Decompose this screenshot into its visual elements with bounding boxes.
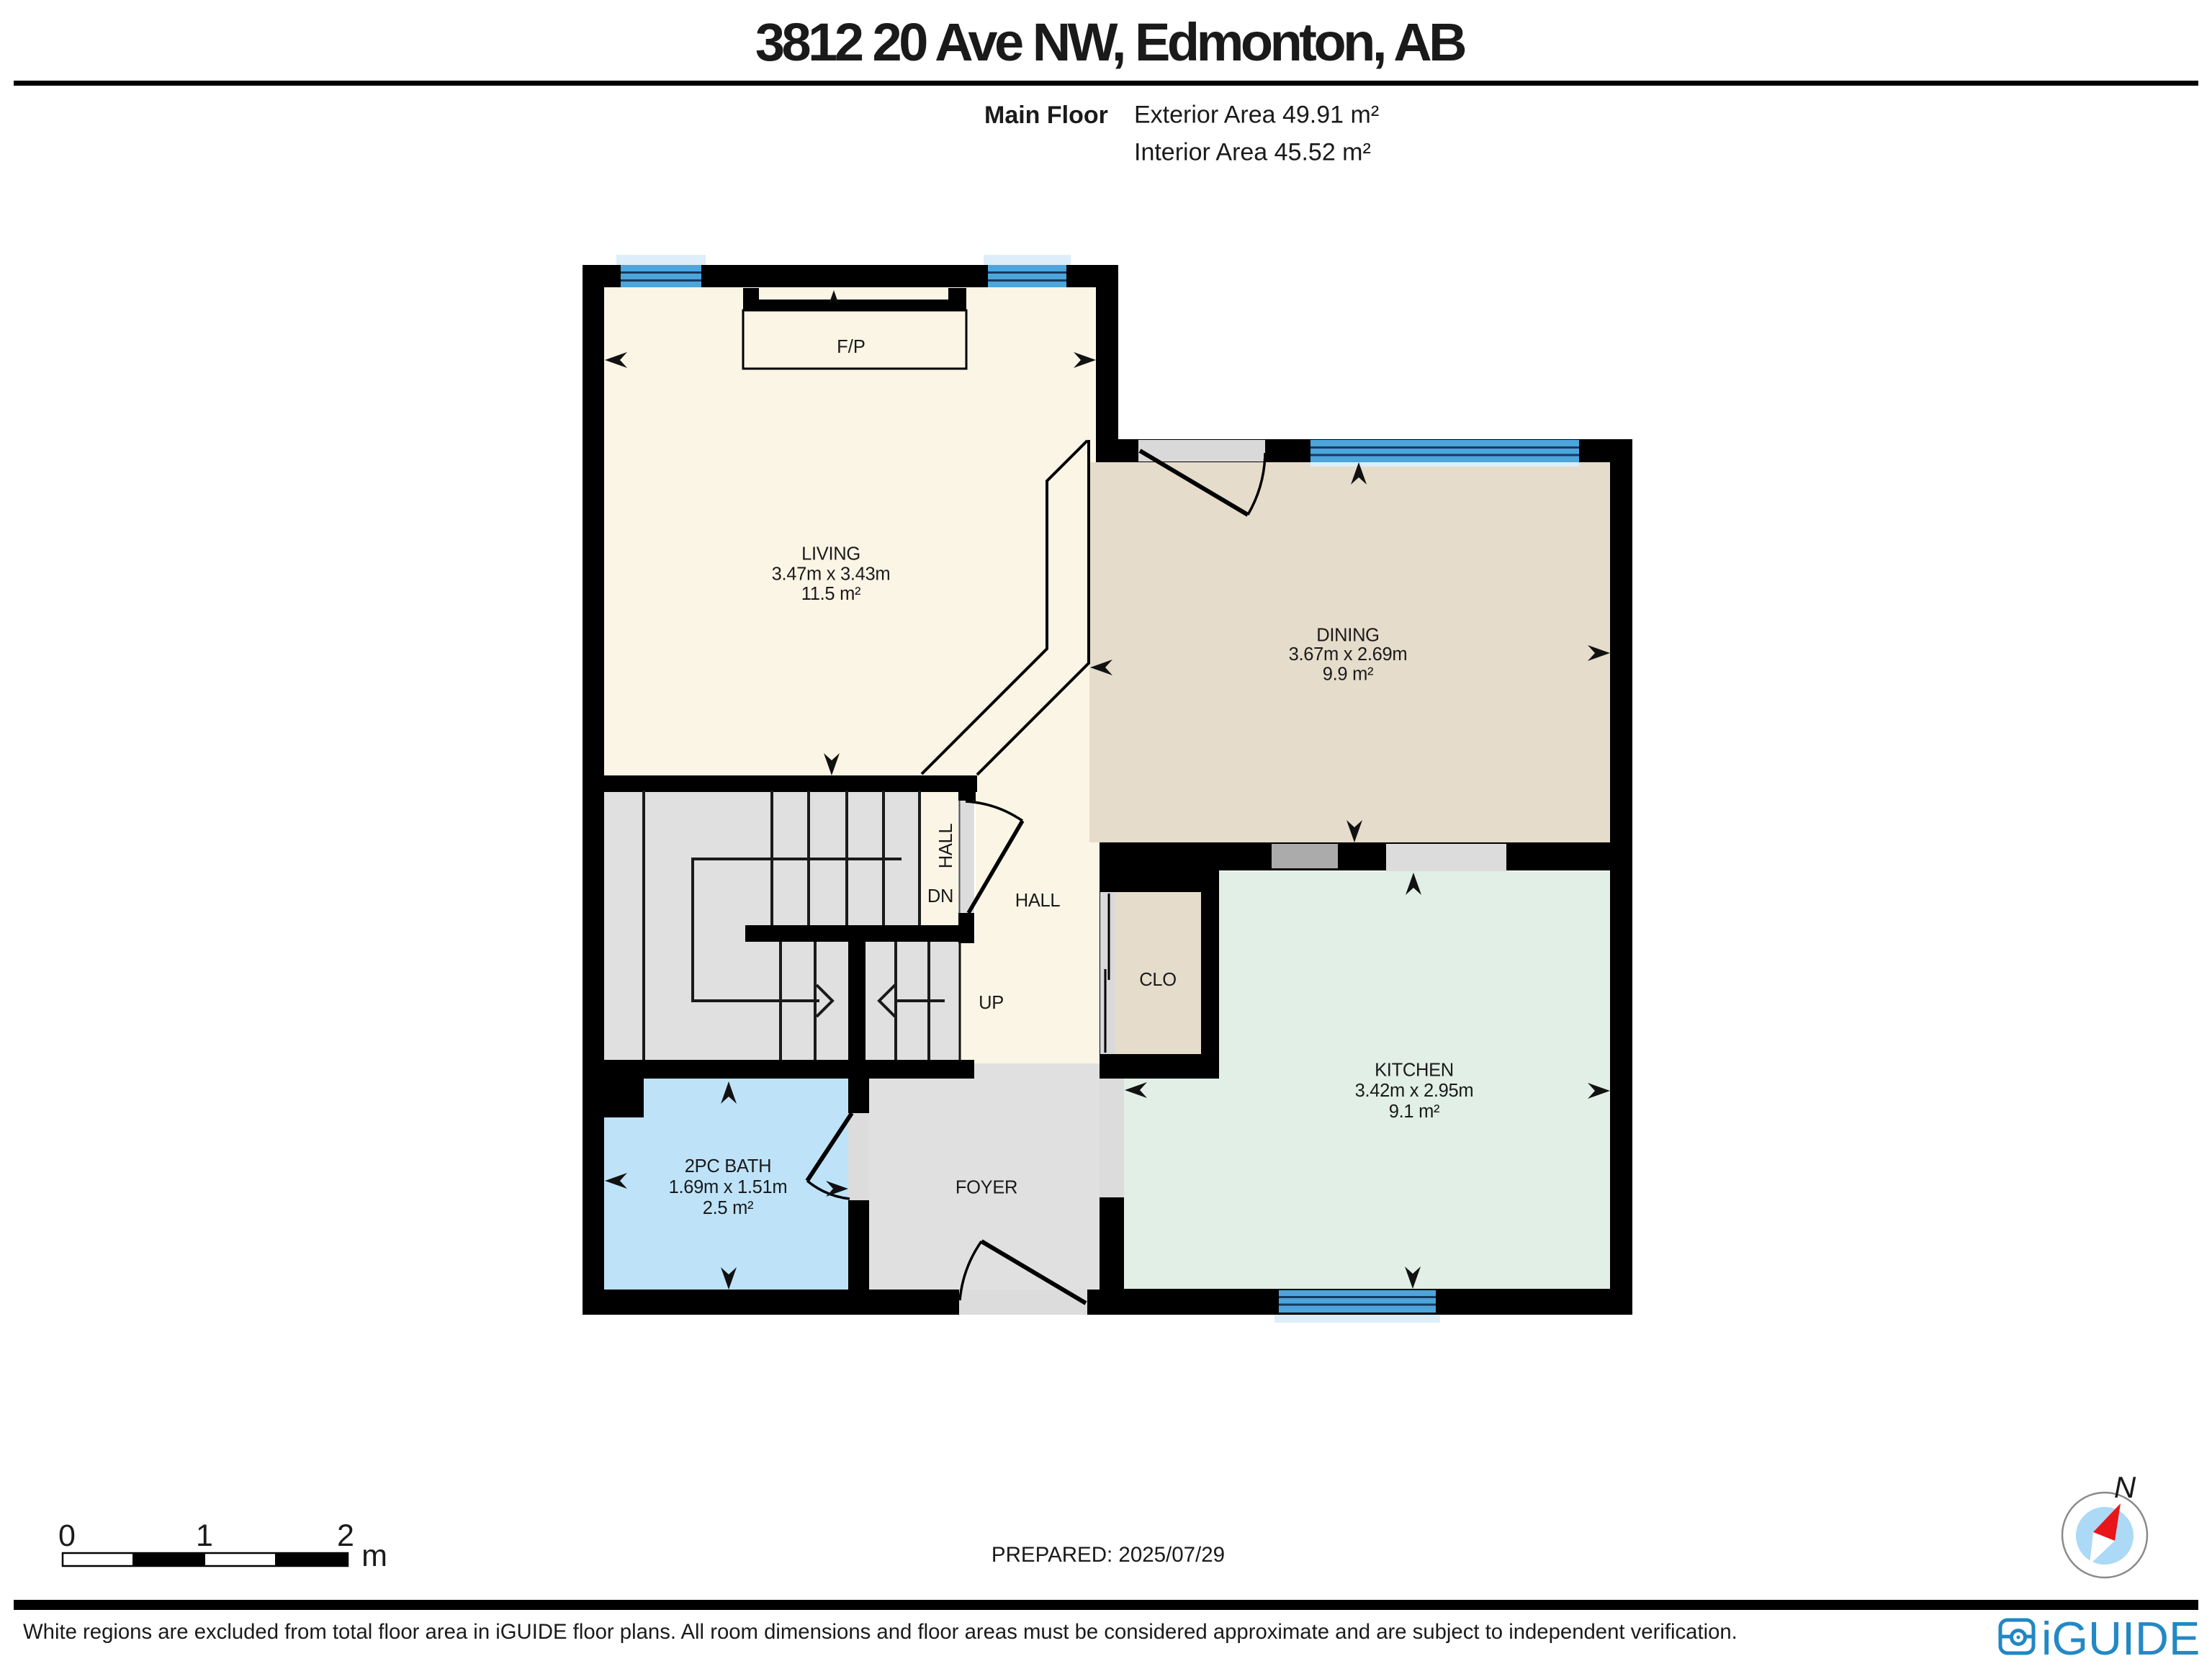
svg-text:Interior Area 45.52 m²: Interior Area 45.52 m² xyxy=(1134,139,1371,166)
svg-text:iGUIDE: iGUIDE xyxy=(2041,1612,2200,1656)
svg-text:HALL: HALL xyxy=(936,824,956,869)
svg-text:3.42m x 2.95m: 3.42m x 2.95m xyxy=(1355,1081,1474,1101)
svg-text:HALL: HALL xyxy=(1015,891,1061,911)
svg-text:2.5 m²: 2.5 m² xyxy=(703,1198,753,1218)
svg-text:2: 2 xyxy=(337,1518,354,1553)
svg-text:1: 1 xyxy=(196,1518,213,1553)
svg-text:11.5 m²: 11.5 m² xyxy=(801,584,860,604)
svg-text:KITCHEN: KITCHEN xyxy=(1375,1061,1454,1081)
svg-text:DN: DN xyxy=(927,886,953,906)
svg-text:CLO: CLO xyxy=(1139,970,1177,990)
svg-text:DINING: DINING xyxy=(1316,625,1379,645)
svg-text:White regions are excluded fro: White regions are excluded from total fl… xyxy=(23,1620,1737,1644)
svg-text:F/P: F/P xyxy=(837,337,866,357)
svg-text:1.69m x 1.51m: 1.69m x 1.51m xyxy=(669,1177,788,1197)
svg-text:0: 0 xyxy=(58,1518,76,1553)
svg-text:3.47m x 3.43m: 3.47m x 3.43m xyxy=(772,564,891,585)
svg-text:3812 20 Ave NW, Edmonton, AB: 3812 20 Ave NW, Edmonton, AB xyxy=(755,12,1465,72)
svg-text:LIVING: LIVING xyxy=(801,544,860,564)
svg-text:3.67m x 2.69m: 3.67m x 2.69m xyxy=(1289,644,1408,665)
svg-text:PREPARED: 2025/07/29: PREPARED: 2025/07/29 xyxy=(992,1543,1225,1567)
svg-text:UP: UP xyxy=(979,993,1004,1013)
svg-text:N: N xyxy=(2114,1470,2136,1504)
svg-text:Exterior Area 49.91 m²: Exterior Area 49.91 m² xyxy=(1134,102,1379,129)
svg-text:m: m xyxy=(361,1539,387,1573)
svg-text:2PC BATH: 2PC BATH xyxy=(685,1156,771,1176)
svg-text:Main Floor: Main Floor xyxy=(984,102,1108,129)
svg-text:9.9 m²: 9.9 m² xyxy=(1323,665,1373,685)
svg-text:FOYER: FOYER xyxy=(956,1177,1017,1197)
svg-text:9.1 m²: 9.1 m² xyxy=(1389,1102,1439,1122)
